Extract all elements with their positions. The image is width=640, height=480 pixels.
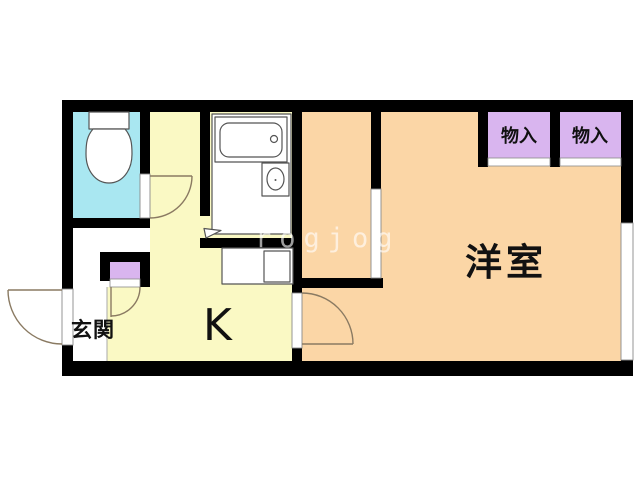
- wall-closet-left-stub: [478, 112, 488, 167]
- wall-alcove-bottom: [297, 278, 383, 288]
- wall-toilet-bottom: [62, 218, 150, 228]
- wall-below-room-door: [292, 348, 302, 361]
- room-door-opening: [292, 293, 302, 348]
- floor-plan-page: 玄関 K 洋室 物入 物入 rogjog: [0, 0, 640, 480]
- western-room-label: 洋室: [465, 241, 547, 284]
- toilet-icon: [86, 112, 132, 183]
- entrance-passage-opening: [140, 228, 150, 252]
- unit-bath: [204, 114, 291, 238]
- wall-closet-divider: [550, 112, 560, 167]
- closet-right-label: 物入: [572, 125, 608, 147]
- entry-door: [8, 290, 62, 344]
- wall-shoebox-right: [140, 252, 150, 287]
- shoe-cabinet-box: [110, 262, 140, 279]
- wall-outer-top: [62, 100, 633, 112]
- wall-bathroom-left: [200, 112, 210, 216]
- entrance-label: 玄関: [71, 318, 115, 342]
- closet-left-door-strip: [488, 158, 550, 166]
- washbasin-icon: [262, 163, 289, 196]
- bathtub-icon: [215, 117, 287, 162]
- window-right: [621, 223, 633, 360]
- floor-plan: 玄関 K 洋室 物入 物入 rogjog: [0, 0, 640, 480]
- wall-toilet-right: [140, 112, 150, 174]
- toilet-door-opening: [140, 174, 150, 218]
- watermark: rogjog: [255, 223, 401, 254]
- wall-alcove-right: [371, 112, 381, 189]
- wall-outer-bottom: [62, 361, 633, 376]
- closet-right-door-strip: [560, 158, 621, 166]
- kitchen-label: K: [203, 300, 233, 351]
- shoe-cabinet-door-strip: [110, 279, 140, 287]
- closet-left-label: 物入: [501, 125, 537, 147]
- kitchen-sink: [264, 251, 290, 282]
- wall-entrance-l-vertical: [100, 252, 110, 281]
